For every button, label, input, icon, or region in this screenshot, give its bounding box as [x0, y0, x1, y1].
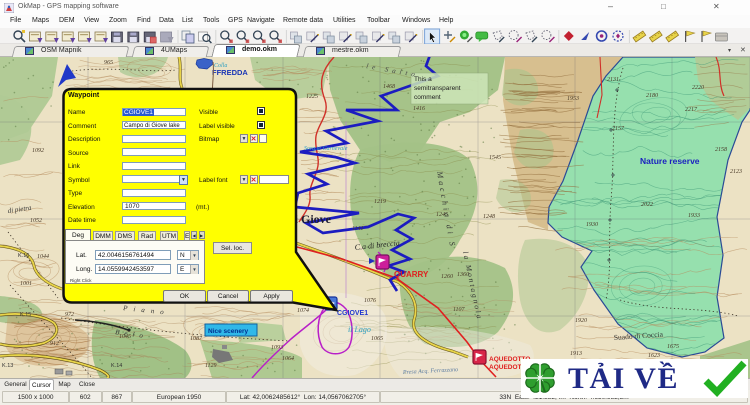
svg-text:TẢI VỀ: TẢI VỀ: [568, 361, 679, 395]
svg-text:1920: 1920: [575, 318, 587, 324]
svg-text:QUARRY: QUARRY: [394, 270, 429, 279]
svg-text:Sorg.te Carnevale: Sorg.te Carnevale: [304, 146, 348, 152]
svg-text:1092: 1092: [32, 148, 44, 154]
svg-text:K.16: K.16: [18, 253, 29, 259]
svg-text:1107: 1107: [453, 307, 466, 313]
svg-text:1416: 1416: [413, 105, 425, 112]
svg-text:1930: 1930: [586, 222, 598, 228]
svg-text:CGIOVE1: CGIOVE1: [337, 310, 368, 317]
svg-text:Nature reserve: Nature reserve: [640, 156, 700, 166]
svg-text:1074: 1074: [297, 307, 309, 314]
svg-text:2157: 2157: [612, 126, 625, 132]
svg-text:1052: 1052: [30, 218, 42, 224]
svg-text:1260: 1260: [441, 274, 453, 280]
svg-text:comment: comment: [414, 94, 441, 101]
svg-text:2220: 2220: [692, 85, 704, 91]
svg-text:K.15: K.15: [20, 312, 31, 318]
svg-text:1141: 1141: [352, 225, 364, 232]
svg-text:965: 965: [104, 60, 113, 66]
svg-text:2022: 2022: [641, 202, 653, 208]
svg-text:972: 972: [65, 312, 74, 318]
svg-text:1248: 1248: [483, 213, 495, 220]
svg-text:2217: 2217: [685, 107, 698, 113]
svg-text:1225: 1225: [306, 94, 318, 100]
svg-text:1076: 1076: [364, 298, 376, 304]
svg-text:1219: 1219: [374, 199, 386, 205]
svg-text:1468: 1468: [383, 83, 395, 90]
svg-text:912: 912: [50, 341, 59, 347]
svg-text:2123: 2123: [730, 169, 742, 175]
svg-text:semitransparent: semitransparent: [414, 85, 461, 92]
svg-text:1065: 1065: [371, 336, 383, 342]
svg-text:2158: 2158: [715, 147, 727, 153]
svg-text:FFREDDA: FFREDDA: [212, 68, 248, 77]
svg-text:K.13: K.13: [2, 363, 13, 369]
svg-text:1093: 1093: [271, 345, 283, 351]
svg-text:1001: 1001: [20, 281, 32, 287]
svg-text:1044: 1044: [37, 253, 49, 260]
svg-text:2131: 2131: [607, 77, 619, 83]
svg-text:1087: 1087: [190, 336, 203, 342]
svg-text:1933: 1933: [688, 213, 700, 219]
svg-text:1953: 1953: [567, 96, 579, 102]
svg-text:il Lago: il Lago: [348, 325, 371, 334]
svg-text:1545: 1545: [489, 154, 501, 161]
svg-text:1913: 1913: [570, 351, 582, 357]
svg-text:1129: 1129: [205, 363, 217, 369]
svg-text:Nice scenery: Nice scenery: [208, 328, 248, 335]
svg-text:2180: 2180: [646, 93, 658, 99]
svg-text:1675: 1675: [667, 344, 679, 350]
svg-text:K.14: K.14: [111, 363, 122, 369]
svg-text:1064: 1064: [282, 355, 294, 362]
